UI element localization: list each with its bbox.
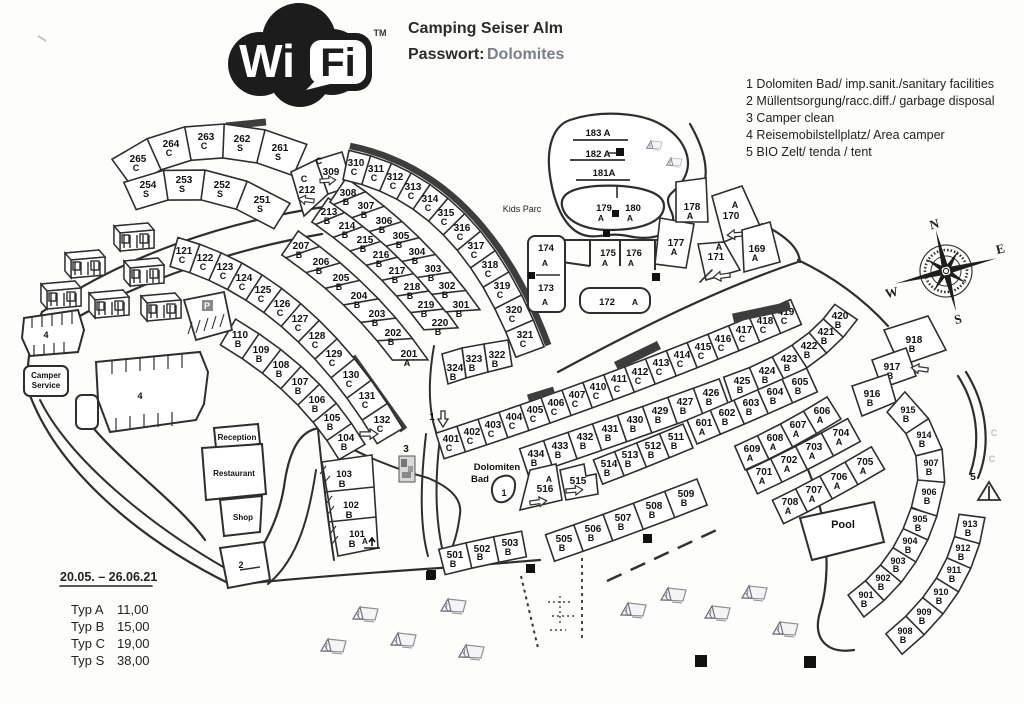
svg-text:C: C: [441, 217, 448, 227]
svg-text:S: S: [217, 189, 223, 199]
svg-text:C: C: [551, 407, 558, 417]
svg-text:Fi: Fi: [320, 41, 356, 85]
svg-text:C: C: [760, 325, 767, 335]
svg-text:173: 173: [538, 283, 554, 294]
svg-text:B: B: [256, 354, 263, 364]
svg-text:B: B: [407, 291, 414, 301]
svg-text:Reception: Reception: [218, 433, 257, 442]
svg-text:A: A: [699, 427, 706, 437]
svg-text:C: C: [351, 167, 358, 177]
svg-text:C: C: [346, 379, 353, 389]
svg-text:B: B: [559, 543, 566, 553]
svg-text:B: B: [324, 216, 331, 226]
svg-text:B: B: [965, 528, 972, 538]
svg-text:B: B: [936, 596, 943, 606]
svg-text:20.05. – 26.06.21: 20.05. – 26.06.21: [60, 570, 157, 584]
svg-text:171: 171: [708, 252, 725, 263]
svg-text:C: C: [329, 358, 336, 368]
svg-text:C: C: [371, 173, 378, 183]
svg-text:B: B: [795, 386, 802, 396]
svg-text:A: A: [759, 476, 766, 486]
svg-text:P: P: [204, 301, 210, 311]
svg-text:183 A: 183 A: [586, 128, 611, 139]
svg-text:A: A: [785, 506, 792, 516]
svg-text:174: 174: [538, 243, 555, 254]
svg-text:B: B: [903, 414, 910, 424]
svg-text:B: B: [680, 406, 687, 416]
svg-text:C: C: [509, 314, 516, 324]
svg-text:B: B: [919, 616, 926, 626]
svg-text:C: C: [471, 250, 478, 260]
svg-text:B: B: [354, 300, 361, 310]
svg-text:182 A: 182 A: [586, 149, 611, 160]
svg-text:A: A: [546, 474, 552, 484]
svg-text:C: C: [277, 308, 284, 318]
svg-text:A: A: [716, 242, 723, 252]
svg-text:B: B: [343, 197, 350, 207]
svg-text:Typ A: Typ A: [71, 602, 104, 617]
svg-text:B: B: [737, 385, 744, 395]
svg-text:B: B: [392, 275, 399, 285]
svg-text:B: B: [924, 496, 931, 506]
svg-text:Wi: Wi: [239, 35, 295, 87]
svg-text:C: C: [377, 424, 384, 434]
svg-text:B: B: [900, 635, 907, 645]
svg-text:C: C: [446, 443, 453, 453]
svg-text:B: B: [867, 398, 874, 408]
svg-text:C: C: [239, 282, 246, 292]
svg-text:C: C: [530, 414, 537, 424]
svg-text:3: 3: [403, 444, 409, 455]
svg-text:309: 309: [323, 167, 340, 178]
svg-text:B: B: [341, 442, 348, 452]
svg-text:B: B: [360, 244, 367, 254]
svg-text:Shop: Shop: [233, 513, 253, 522]
svg-text:S: S: [257, 204, 263, 214]
svg-text:15,00: 15,00: [117, 619, 150, 634]
svg-text:C: C: [488, 429, 495, 439]
svg-text:A: A: [542, 297, 548, 307]
svg-text:2 Müllentsorgung/racc.diff./ g: 2 Müllentsorgung/racc.diff./ garbage dis…: [746, 94, 995, 108]
svg-text:B: B: [681, 498, 688, 508]
svg-text:C: C: [593, 391, 600, 401]
svg-text:B: B: [605, 433, 612, 443]
svg-text:C: C: [312, 340, 319, 350]
svg-text:516: 516: [537, 484, 554, 495]
svg-text:B: B: [327, 422, 334, 432]
svg-text:170: 170: [723, 211, 740, 222]
svg-text:Passwort:: Passwort:: [408, 46, 484, 63]
svg-text:C: C: [425, 203, 432, 213]
svg-text:4 Reisemobilstellplatz/ Area c: 4 Reisemobilstellplatz/ Area camper: [746, 128, 945, 142]
svg-text:A: A: [632, 297, 638, 307]
svg-text:Service: Service: [32, 381, 61, 390]
svg-text:C: C: [989, 454, 996, 464]
svg-text:B: B: [531, 458, 538, 468]
svg-text:A: A: [860, 466, 867, 476]
svg-text:B: B: [435, 327, 442, 337]
svg-text:C: C: [614, 384, 621, 394]
svg-text:B: B: [412, 256, 419, 266]
svg-text:C: C: [467, 436, 474, 446]
svg-text:C: C: [572, 399, 579, 409]
svg-text:C: C: [497, 290, 504, 300]
svg-text:B: B: [722, 417, 729, 427]
svg-text:B: B: [456, 309, 463, 319]
svg-text:Dolomites: Dolomites: [487, 46, 564, 63]
svg-text:A: A: [732, 200, 739, 210]
svg-text:Dolomiten: Dolomiten: [474, 462, 521, 473]
svg-text:Typ S: Typ S: [71, 653, 105, 668]
svg-text:B: B: [296, 250, 303, 260]
svg-text:B: B: [958, 552, 965, 562]
svg-text:B: B: [648, 450, 655, 460]
svg-text:A: A: [793, 429, 800, 439]
svg-text:C: C: [991, 428, 998, 438]
svg-text:C: C: [677, 359, 684, 369]
svg-text:Pool: Pool: [831, 519, 855, 531]
svg-text:38,00: 38,00: [117, 653, 150, 668]
svg-text:B: B: [926, 467, 933, 477]
svg-text:C: C: [301, 174, 308, 184]
svg-text:S: S: [237, 143, 243, 153]
svg-text:B: B: [396, 240, 403, 250]
svg-text:212: 212: [299, 185, 316, 196]
svg-text:C: C: [718, 343, 725, 353]
svg-text:B: B: [649, 510, 656, 520]
svg-text:A: A: [602, 258, 608, 268]
svg-text:Camper: Camper: [31, 371, 61, 380]
svg-text:C: C: [390, 181, 397, 191]
svg-text:B: B: [376, 259, 383, 269]
svg-text:B: B: [346, 510, 353, 521]
svg-text:C: C: [408, 191, 415, 201]
svg-text:B: B: [428, 273, 435, 283]
svg-text:A: A: [628, 258, 634, 268]
svg-text:B: B: [835, 320, 842, 330]
svg-text:Kids Parc: Kids Parc: [503, 204, 542, 214]
svg-text:B: B: [905, 545, 912, 555]
svg-text:B: B: [618, 522, 625, 532]
svg-text:A: A: [747, 453, 754, 463]
svg-text:B: B: [915, 523, 922, 533]
svg-text:B: B: [339, 479, 346, 490]
svg-text:B: B: [671, 441, 678, 451]
svg-text:A: A: [836, 437, 843, 447]
svg-text:A: A: [687, 211, 694, 221]
svg-text:S: S: [143, 189, 149, 199]
svg-text:B: B: [706, 397, 713, 407]
svg-text:B: B: [379, 225, 386, 235]
svg-text:B: B: [604, 468, 611, 478]
svg-text:TM: TM: [374, 28, 387, 38]
svg-text:B: B: [492, 359, 499, 369]
svg-text:C: C: [179, 255, 186, 265]
svg-text:A: A: [784, 464, 791, 474]
svg-text:A: A: [404, 358, 411, 368]
svg-text:B: B: [630, 424, 637, 434]
svg-text:1 Dolomiten Bad/ imp.sanit./sa: 1 Dolomiten Bad/ imp.sanit./sanitary fac…: [746, 77, 994, 91]
svg-text:4: 4: [137, 391, 142, 401]
svg-text:B: B: [588, 533, 595, 543]
svg-text:Typ B: Typ B: [71, 619, 104, 634]
svg-text:C: C: [166, 148, 173, 158]
svg-text:C: C: [485, 269, 492, 279]
svg-text:A: A: [809, 494, 816, 504]
svg-text:B: B: [450, 559, 457, 569]
svg-text:1: 1: [429, 412, 435, 423]
svg-text:B: B: [312, 404, 319, 414]
svg-text:B: B: [450, 372, 457, 382]
svg-text:B: B: [762, 375, 769, 385]
svg-text:Restaurant: Restaurant: [213, 469, 255, 478]
svg-text:B: B: [625, 459, 632, 469]
svg-text:2: 2: [238, 560, 243, 570]
svg-text:A: A: [752, 253, 759, 263]
svg-text:3 Camper clean: 3 Camper clean: [746, 111, 834, 125]
svg-text:B: B: [349, 539, 356, 550]
svg-text:C: C: [457, 232, 464, 242]
svg-text:B: B: [442, 290, 449, 300]
svg-text:C: C: [698, 351, 705, 361]
svg-text:515: 515: [570, 476, 587, 487]
svg-text:B: B: [555, 450, 562, 460]
svg-text:Camping Seiser Alm: Camping Seiser Alm: [408, 20, 563, 37]
svg-text:B: B: [388, 337, 395, 347]
svg-text:C: C: [295, 323, 302, 333]
svg-text:19,00: 19,00: [117, 636, 150, 651]
svg-text:172: 172: [599, 297, 615, 308]
svg-text:A: A: [817, 415, 824, 425]
svg-text:B: B: [861, 599, 868, 609]
svg-text:C: C: [520, 339, 527, 349]
svg-text:C: C: [200, 262, 207, 272]
svg-text:B: B: [878, 582, 885, 592]
svg-text:A: A: [671, 247, 678, 257]
svg-text:A: A: [809, 451, 816, 461]
svg-text:1: 1: [501, 488, 506, 498]
svg-text:B: B: [361, 210, 368, 220]
svg-text:B: B: [421, 309, 428, 319]
svg-text:A: A: [542, 258, 548, 268]
svg-text:C: C: [316, 156, 323, 166]
svg-text:C: C: [362, 400, 369, 410]
svg-text:A: A: [362, 537, 368, 546]
svg-text:A: A: [770, 442, 777, 452]
svg-text:B: B: [336, 282, 343, 292]
svg-text:B: B: [372, 318, 379, 328]
svg-text:B: B: [949, 574, 956, 584]
svg-text:181A: 181A: [593, 168, 616, 179]
svg-text:B: B: [919, 439, 926, 449]
svg-text:C: C: [739, 334, 746, 344]
svg-text:B: B: [821, 336, 828, 346]
svg-text:B: B: [770, 396, 777, 406]
svg-text:C: C: [509, 421, 516, 431]
svg-text:11,00: 11,00: [117, 602, 149, 617]
svg-text:B: B: [342, 230, 349, 240]
svg-text:C: C: [258, 294, 265, 304]
svg-text:5 BIO Zelt/ tenda / tent: 5 BIO Zelt/ tenda / tent: [746, 145, 872, 159]
svg-text:Bad: Bad: [471, 474, 489, 485]
svg-text:B: B: [235, 339, 242, 349]
svg-text:S: S: [179, 184, 185, 194]
svg-text:A: A: [598, 213, 604, 223]
svg-text:S: S: [275, 152, 281, 162]
svg-text:B: B: [746, 407, 753, 417]
svg-text:Typ C: Typ C: [71, 636, 105, 651]
svg-text:B: B: [655, 415, 662, 425]
svg-text:C: C: [133, 163, 140, 173]
svg-text:B: B: [505, 547, 512, 557]
svg-text:C: C: [635, 376, 642, 386]
svg-text:B: B: [784, 363, 791, 373]
svg-text:B: B: [580, 441, 587, 451]
svg-text:C: C: [656, 367, 663, 377]
svg-text:B: B: [316, 266, 323, 276]
svg-text:C: C: [220, 271, 227, 281]
svg-text:C: C: [781, 316, 788, 326]
svg-text:B: B: [909, 344, 916, 354]
svg-text:B: B: [893, 564, 900, 574]
svg-text:B: B: [276, 369, 283, 379]
svg-text:B: B: [477, 552, 484, 562]
svg-text:A: A: [834, 481, 841, 491]
svg-text:4: 4: [43, 330, 48, 340]
svg-text:B: B: [469, 363, 476, 373]
svg-text:B: B: [295, 386, 302, 396]
svg-text:A: A: [627, 213, 633, 223]
svg-text:C: C: [201, 141, 208, 151]
svg-text:B: B: [804, 350, 811, 360]
